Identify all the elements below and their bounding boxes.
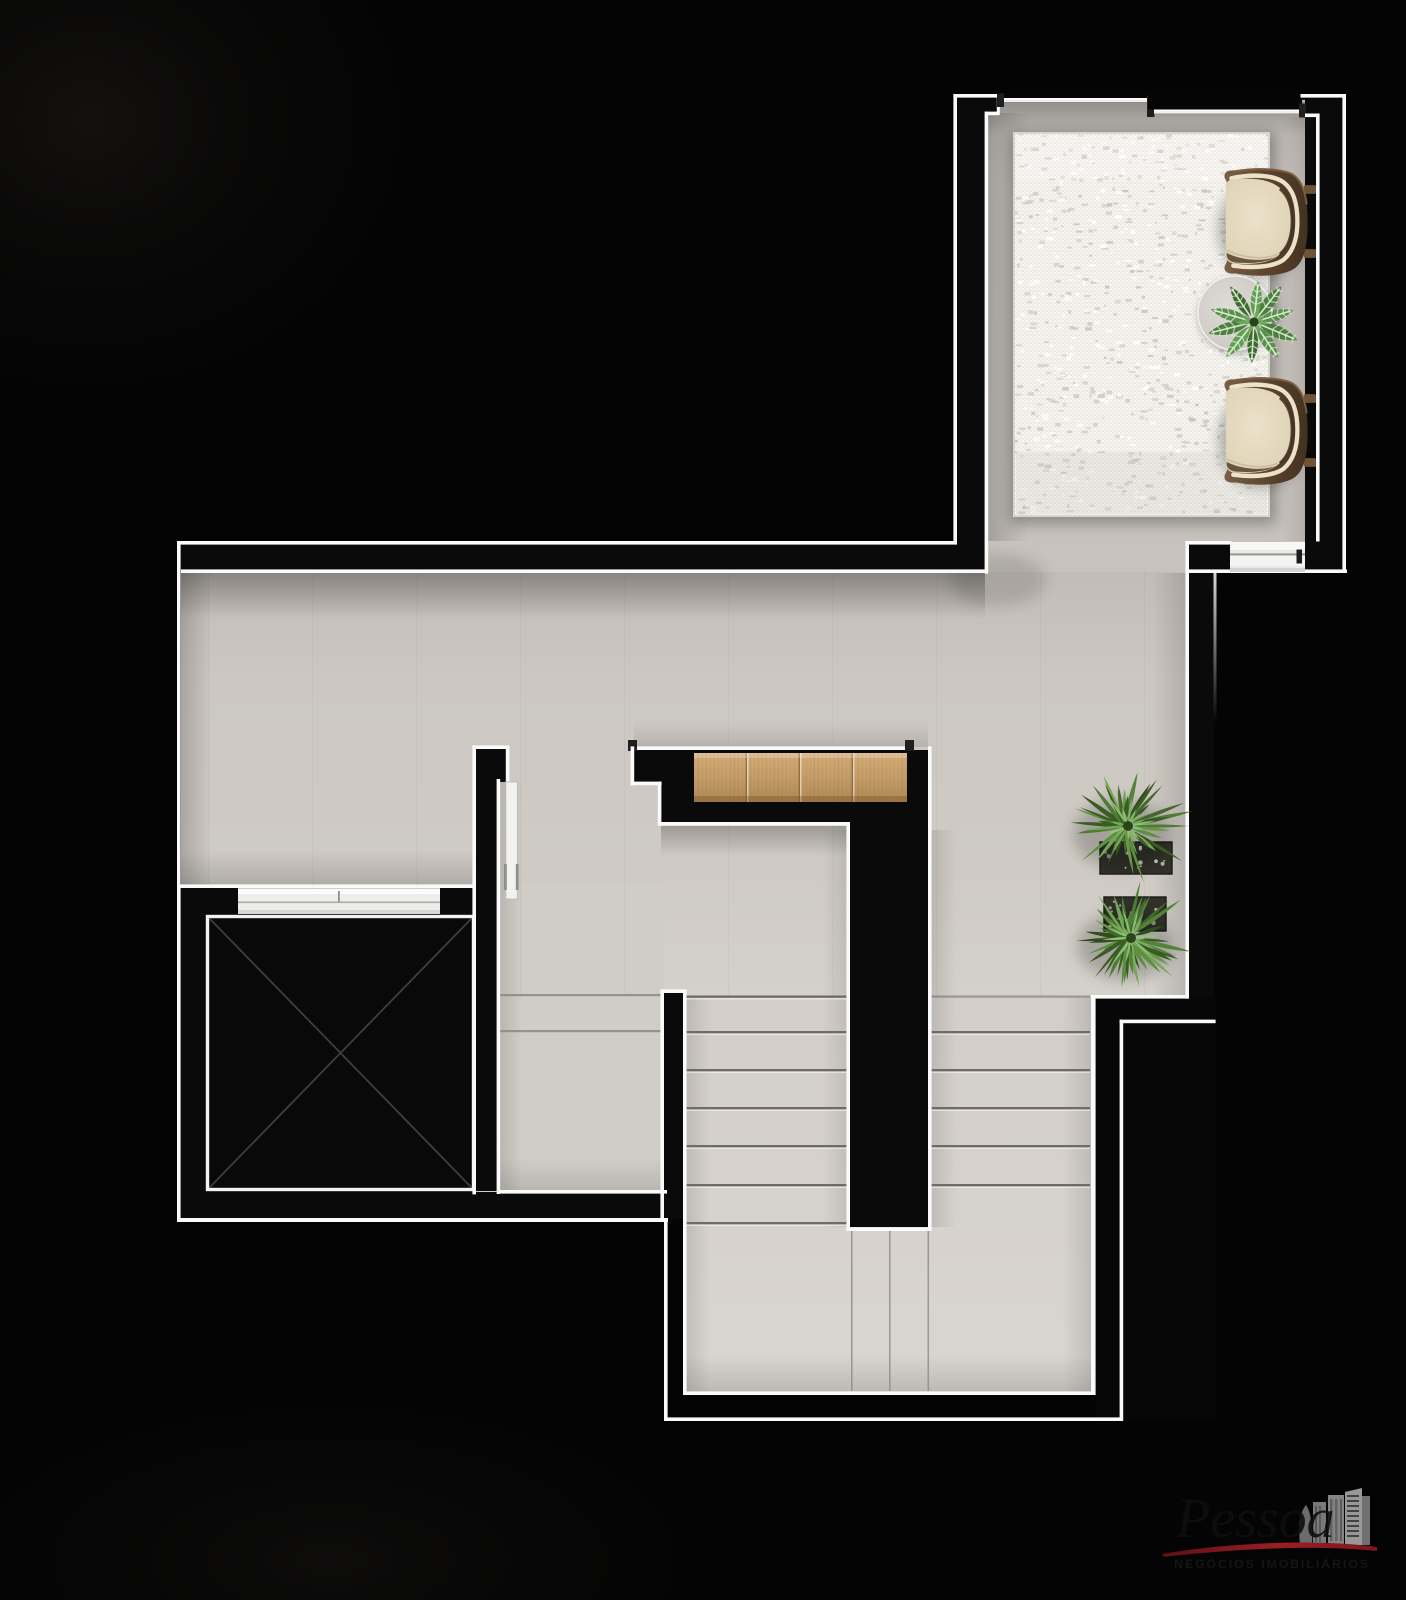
svg-text:NEGÓCIOS IMOBILIÁRIOS: NEGÓCIOS IMOBILIÁRIOS: [1174, 1556, 1370, 1571]
svg-text:Pessoa: Pessoa: [1175, 1488, 1335, 1550]
